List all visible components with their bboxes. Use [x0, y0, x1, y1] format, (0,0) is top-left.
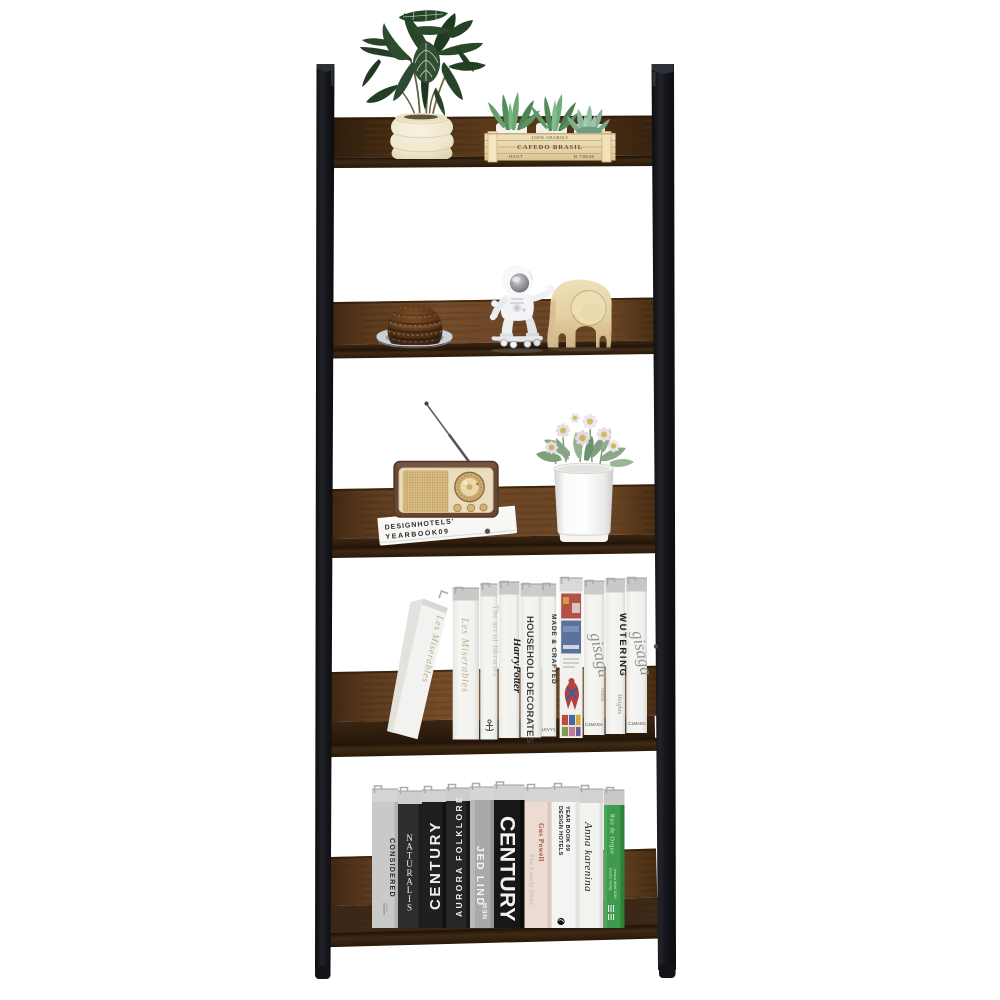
svg-text:100% ARABICA: 100% ARABICA — [531, 135, 568, 140]
svg-text:CAFEDO BRASIL: CAFEDO BRASIL — [517, 144, 583, 151]
svg-text:Heights: Heights — [616, 693, 623, 715]
svg-text:CENTURY: CENTURY — [427, 820, 444, 910]
svg-text:LEVY1: LEVY1 — [542, 727, 556, 732]
svg-text:NEW: NEW — [482, 901, 489, 919]
svg-text:The Lonely Ones: The Lonely Ones — [528, 854, 535, 905]
svg-text:N 73848: N 73848 — [574, 154, 595, 159]
svg-text:MADE & CRAFTED: MADE & CRAFTED — [550, 614, 557, 685]
svg-text:C1MAGA: C1MAGA — [585, 722, 603, 727]
svg-text:HOUSEHOLD DECORATES: HOUSEHOLD DECORATES — [524, 616, 535, 744]
svg-text:HAUT: HAUT — [509, 154, 524, 159]
svg-text:Les Miserables: Les Miserables — [459, 617, 470, 693]
svg-text:YEAR BOOK 09: YEAR BOOK 09 — [564, 806, 570, 851]
svg-text:Jessica Millet 2018: Jessica Millet 2018 — [613, 868, 617, 898]
svg-text:CENTURY: CENTURY — [496, 816, 520, 922]
svg-text:JED LIND: JED LIND — [474, 846, 486, 907]
svg-text:CONSIDERED: CONSIDERED — [388, 838, 397, 898]
svg-text:C1MAGA: C1MAGA — [628, 721, 646, 726]
svg-text:The art of libraries: The art of libraries — [491, 605, 500, 677]
svg-text:Gruner Verlag: Gruner Verlag — [609, 868, 613, 890]
svg-text:DESIGN HOTELS: DESIGN HOTELS — [557, 806, 563, 856]
svg-text:AURORA FOLKLORE: AURORA FOLKLORE — [454, 795, 464, 917]
svg-text:Anna karenina: Anna karenina — [582, 821, 594, 892]
svg-text:Gus Powell: Gus Powell — [537, 823, 545, 862]
svg-text:Rue de Orque: Rue de Orque — [609, 814, 615, 855]
svg-text:hotels: hotels — [599, 688, 605, 702]
